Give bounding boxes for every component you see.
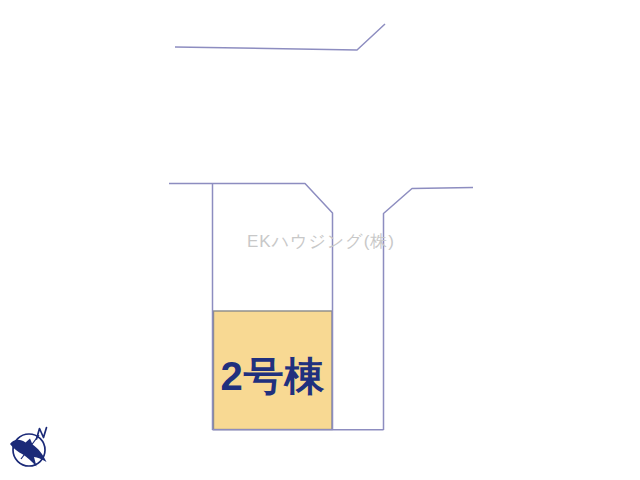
- compass-bird-glyph: [10, 439, 47, 467]
- site-plan-svg: EKハウジング(株) 2号棟: [0, 0, 640, 480]
- building-2-label: 2号棟: [220, 354, 325, 398]
- parcel-boundary-right-lot: [384, 188, 474, 431]
- compass-icon: [10, 428, 47, 467]
- site-plan-canvas: EKハウジング(株) 2号棟: [0, 0, 640, 480]
- company-watermark: EKハウジング(株): [247, 232, 395, 251]
- road-boundary-line-top: [175, 24, 385, 50]
